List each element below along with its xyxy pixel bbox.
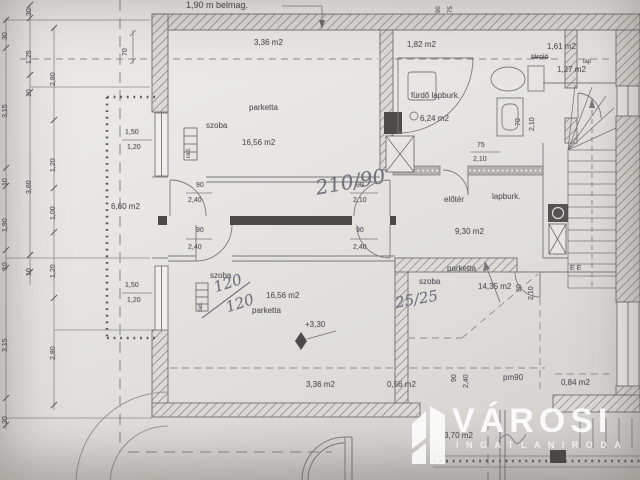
- dim-rot: 3,15: [2, 104, 9, 118]
- watermark-subtitle: INGATLANIRODA: [456, 440, 628, 450]
- toilet-icon: [491, 67, 525, 91]
- dim-rot: 90: [436, 6, 442, 13]
- window-dim: 1,20: [127, 297, 141, 304]
- door-dim-rot: 2,10: [528, 286, 535, 300]
- dim-rot: 10: [2, 178, 9, 186]
- dim-rot: 2,80: [50, 346, 57, 360]
- area-bath-strip: 1,82 m2: [407, 41, 436, 49]
- dim-rot: 30: [2, 32, 9, 40]
- dim-rot: 2,80: [50, 72, 57, 86]
- parapet-dim: pm90: [503, 374, 523, 382]
- area-strip3: 0,84 m2: [561, 379, 590, 387]
- level-value: +3,30: [305, 321, 325, 329]
- floor-br-room: parketta: [447, 265, 476, 273]
- area-bath: 6,24 m2: [420, 115, 449, 123]
- door-dim-rot: 90: [516, 284, 523, 292]
- door-dim-rot: 70: [515, 118, 522, 126]
- dim-belmag: 1,90 m belmag.: [186, 1, 248, 10]
- building-logo-icon: [408, 398, 450, 464]
- door-dim: 2,10: [353, 197, 367, 204]
- floor-hall: lapburk.: [492, 193, 520, 201]
- area-storage-strip: 1,61 m2: [547, 43, 576, 51]
- floor-lower-room: parketta: [252, 307, 281, 315]
- room-storage: tároló: [531, 54, 549, 61]
- area-lower-strip: 3,36 m2: [306, 381, 335, 389]
- window-dim: 1,50: [125, 129, 139, 136]
- area-upper-strip: 3,36 m2: [254, 39, 283, 47]
- dim-rot: 10: [26, 268, 33, 276]
- door-dim: 2,40: [353, 244, 367, 251]
- window-dim: 1,50: [125, 282, 139, 289]
- room-bath: fürdő lapburk.: [411, 92, 460, 100]
- room-upper: szoba: [206, 122, 227, 130]
- watermark-title: VÁROSI: [452, 402, 612, 441]
- area-br-room: 14,35 m2: [478, 283, 511, 291]
- door-dim-rot: 2,40: [463, 374, 470, 388]
- meter-marks: E E: [570, 265, 581, 272]
- area-hall: 9,30 m2: [455, 228, 484, 236]
- small-dim-lines: [122, 6, 500, 293]
- floor-upper-room: parketta: [249, 104, 278, 112]
- room-br: szoba: [419, 278, 440, 286]
- balcony-edge-lines: [433, 456, 640, 467]
- dim-rot: 1,20: [50, 264, 57, 278]
- door-dim: 2,40: [188, 244, 202, 251]
- radiator-label: rad.: [198, 302, 204, 312]
- door-dim: 90: [196, 227, 204, 234]
- door-dim: 2,40: [188, 197, 202, 204]
- dim-rot: 30: [2, 416, 9, 424]
- floor-plan-photo: 1,90 m belmag.3,36 m2parkettaszoba16,56 …: [0, 0, 640, 480]
- door-dim: 90: [356, 227, 364, 234]
- door-bath-width: 75: [477, 142, 485, 149]
- room-hall: előtér: [444, 196, 464, 204]
- level-mark: [295, 331, 336, 350]
- area-strip2: 0,56 m2: [387, 381, 416, 389]
- mid-wall-band: [158, 216, 396, 225]
- door-bath-height: 2,10: [473, 156, 487, 163]
- area-lower-room: 16,56 m2: [266, 292, 299, 300]
- radiator-label: rad.: [186, 148, 192, 158]
- dim-rot: 75: [448, 6, 454, 13]
- dim-rot: 3,15: [2, 338, 9, 352]
- dim-rot: 10: [26, 89, 33, 97]
- dim-rot: 1,25: [26, 50, 33, 64]
- door-dim-rot: 2,10: [529, 117, 536, 131]
- dimension-chains: [3, 2, 152, 430]
- dim-rot: 70: [122, 48, 129, 56]
- area-storage: 1,27 m2: [557, 66, 586, 74]
- dim-rot: 1,20: [50, 158, 57, 172]
- dim-rot: 30: [26, 8, 33, 16]
- dim-rot: 10: [2, 262, 9, 270]
- area-upper-room: 16,56 m2: [242, 139, 275, 147]
- door-dim-rot: 90: [451, 374, 458, 382]
- dim-rot: 1,90: [2, 218, 9, 232]
- window-dim: 1,20: [127, 144, 141, 151]
- area-corridor: 6,60 m2: [111, 203, 140, 211]
- door-dim: 90: [196, 182, 204, 189]
- dim-rot: 1,00: [50, 206, 57, 220]
- dim-rot: 3,60: [26, 180, 33, 194]
